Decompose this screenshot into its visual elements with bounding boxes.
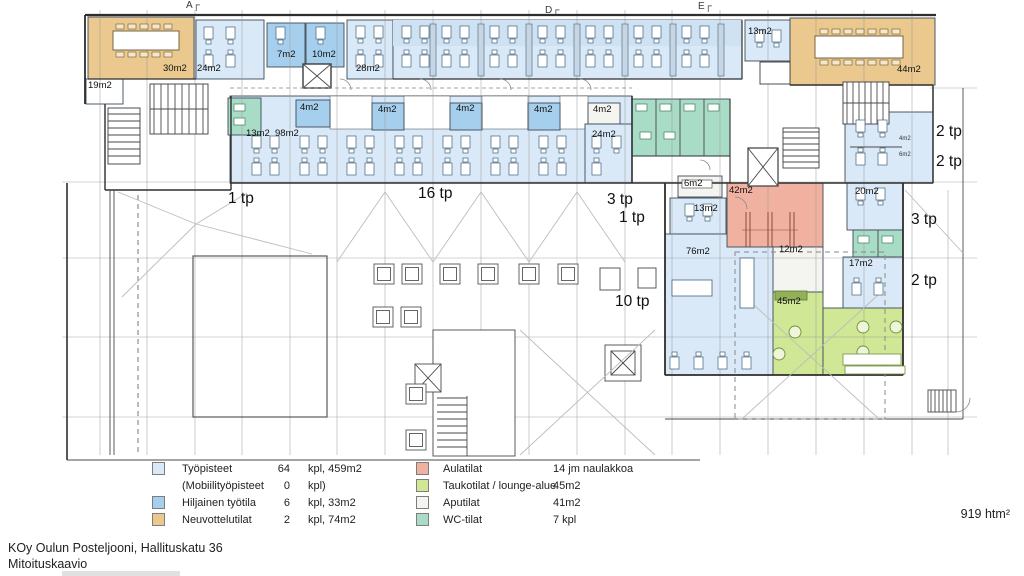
drawing-type-label: Mitoituskaavio xyxy=(8,557,87,571)
legend-value: 41m2 xyxy=(553,497,581,509)
legend-unit: kpl, 33m2 xyxy=(308,497,356,509)
legend-swatch-wc-tilat-icon xyxy=(416,513,429,526)
workstation-count-label: 1 tp xyxy=(228,191,254,207)
legend-label: Aulatilat xyxy=(443,463,482,475)
room-area-label: 4m2 xyxy=(300,103,318,113)
legend-swatch-taukotilat-icon xyxy=(416,479,429,492)
room-area-label: 20m2 xyxy=(855,187,879,197)
legend-unit: kpl, 74m2 xyxy=(308,514,356,526)
room-area-label: 19m2 xyxy=(88,81,112,91)
room-area-label: 24m2 xyxy=(197,64,221,74)
legend-value: 7 kpl xyxy=(553,514,576,526)
room-area-label: 42m2 xyxy=(729,186,753,196)
legend-label: Neuvottelutilat xyxy=(182,514,252,526)
legend-swatch-aputilat-icon xyxy=(416,496,429,509)
project-title: KOy Oulun Posteljooni, Hallituskatu 36 xyxy=(8,541,223,555)
floor-plan-page: A┌D┌E┌ 30m224m27m210m228m219m213m298m24m… xyxy=(0,0,1024,576)
legend-value: 45m2 xyxy=(553,480,581,492)
room-area-label: 76m2 xyxy=(686,247,710,257)
room-area-label: 30m2 xyxy=(163,64,187,74)
legend-unit: kpl) xyxy=(308,480,326,492)
room-area-label: 24m2 xyxy=(592,130,616,140)
workstation-count-label: 10 tp xyxy=(615,294,649,310)
legend-unit: kpl, 459m2 xyxy=(308,463,362,475)
room-area-label: 13m2 xyxy=(748,27,772,37)
workstation-count-label: 1 tp xyxy=(619,210,645,226)
workstation-count-label: 2 tp xyxy=(936,124,962,140)
legend-count: 64 xyxy=(274,463,290,475)
legend-label: WC-tilat xyxy=(443,514,482,526)
total-area-label: 919 htm² xyxy=(961,507,1010,521)
room-area-label: 4m2 xyxy=(456,104,474,114)
room-area-label: 44m2 xyxy=(897,65,921,75)
room-area-label: 4m2 xyxy=(534,105,552,115)
room-area-label: 17m2 xyxy=(849,259,873,269)
legend-label: (Mobiilityöpisteet xyxy=(182,480,264,492)
section-marker: D┌ xyxy=(545,6,559,16)
workstation-count-label: 3 tp xyxy=(607,192,633,208)
legend-count: 6 xyxy=(274,497,290,509)
section-marker: E┌ xyxy=(698,2,712,12)
legend-swatch-aulatilat-icon xyxy=(416,462,429,475)
room-area-label: 12m2 xyxy=(779,245,803,255)
room-area-label: 4m2 xyxy=(593,105,611,115)
workstation-count-label: 3 tp xyxy=(911,212,937,228)
legend-label: Taukotilat / lounge-alue xyxy=(443,480,556,492)
workstation-count-label: 2 tp xyxy=(936,154,962,170)
legend-swatch-hiljainen-icon xyxy=(152,496,165,509)
legend-swatch-neuvottelutilat-icon xyxy=(152,513,165,526)
room-area-label: 45m2 xyxy=(777,297,801,307)
room-area-label: 6m2 xyxy=(684,179,702,189)
room-area-label: 6m2 xyxy=(899,152,911,158)
room-area-label: 13m2 xyxy=(246,129,270,139)
workstation-count-label: 2 tp xyxy=(911,273,937,289)
legend-label: Työpisteet xyxy=(182,463,232,475)
room-area-label: 4m2 xyxy=(378,105,396,115)
legend-count: 0 xyxy=(274,480,290,492)
room-area-label: 7m2 xyxy=(277,50,295,60)
room-area-label: 98m2 xyxy=(275,129,299,139)
room-area-label: 13m2 xyxy=(694,204,718,214)
section-marker: A┌ xyxy=(186,1,200,11)
workstation-count-label: 16 tp xyxy=(418,186,452,202)
scale-bar-remnant xyxy=(62,571,180,576)
room-area-label: 4m2 xyxy=(899,136,911,142)
legend-label: Hiljainen työtila xyxy=(182,497,256,509)
room-area-label: 28m2 xyxy=(356,64,380,74)
legend-count: 2 xyxy=(274,514,290,526)
room-area-label: 10m2 xyxy=(312,50,336,60)
legend-value: 14 jm naulakkoa xyxy=(553,463,633,475)
legend-label: Aputilat xyxy=(443,497,480,509)
legend-swatch-tyopisteet-icon xyxy=(152,462,165,475)
